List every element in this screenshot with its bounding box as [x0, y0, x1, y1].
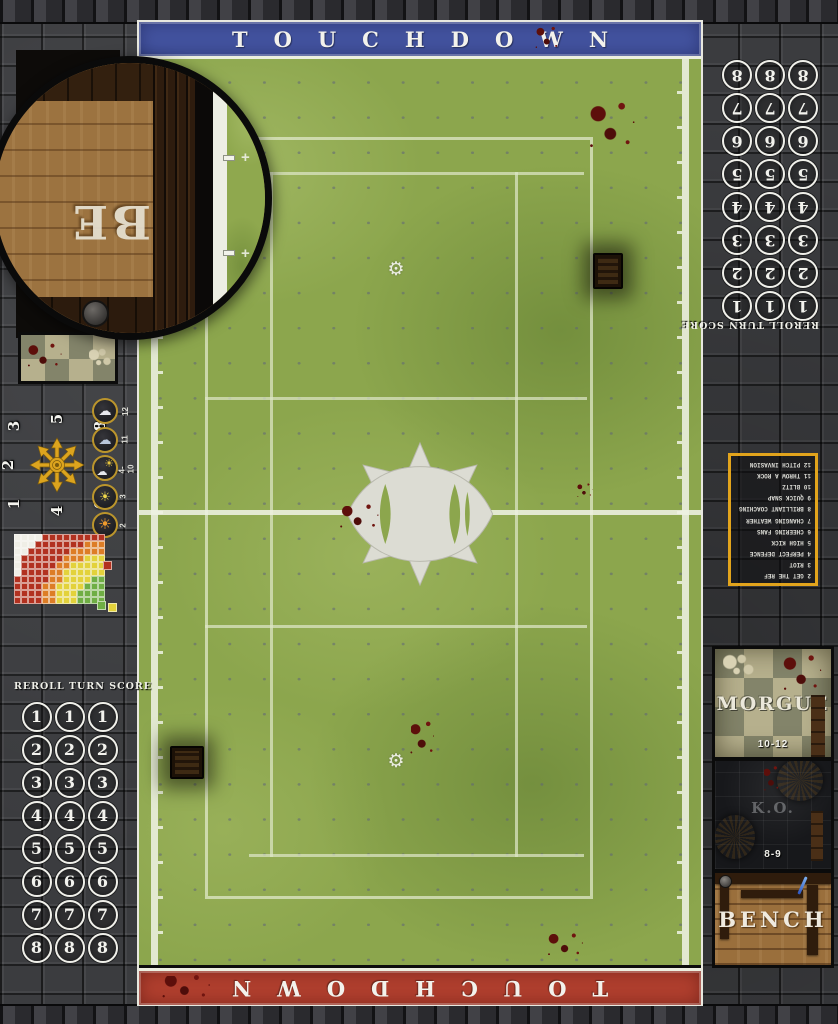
kickoff-table-row: 12 PITCH INVASION [733, 461, 813, 467]
range-cell [98, 548, 105, 555]
range-cell [14, 576, 21, 583]
blood-bowl-pitch-mat: TOUCHDOWN [0, 0, 838, 1024]
range-cell [70, 541, 77, 548]
range-legend-yellow [108, 603, 117, 612]
range-cell [98, 583, 105, 590]
range-cell [84, 576, 91, 583]
range-cell [56, 548, 63, 555]
range-cell [70, 534, 77, 541]
range-cell [84, 555, 91, 562]
range-cell [21, 576, 28, 583]
track-number-circle: 8 [788, 60, 818, 90]
weather-row: ☀☁4-10 [92, 455, 132, 481]
range-cell [70, 562, 77, 569]
rain-cloud-icon: ☁ [92, 427, 118, 453]
kickoff-table-row: 2 GET THE REF [733, 572, 813, 578]
range-cell [63, 541, 70, 548]
track-number-circle: 6 [22, 867, 52, 897]
weather-row: ☁11 [92, 427, 132, 453]
range-cell [14, 534, 21, 541]
track-number-circle: 6 [722, 126, 752, 156]
range-cell [42, 555, 49, 562]
track-number-circle: 4 [88, 801, 118, 831]
grid-cross-mark: + [241, 149, 250, 166]
range-cell [56, 583, 63, 590]
range-cell [28, 583, 35, 590]
track-number-circle: 8 [22, 933, 52, 963]
range-cell [77, 555, 84, 562]
range-cell [28, 555, 35, 562]
range-cell [84, 597, 91, 604]
range-cell [98, 576, 105, 583]
range-cell [91, 583, 98, 590]
range-cell [49, 555, 56, 562]
track-number-circle: 5 [722, 159, 752, 189]
range-cell [63, 555, 70, 562]
range-cell [63, 590, 70, 597]
kickoff-table-row: 9 QUICK SNAP [733, 494, 813, 500]
range-cell [49, 583, 56, 590]
range-cell [28, 590, 35, 597]
blood-splatter [576, 482, 594, 500]
sideline-zoomed [213, 63, 227, 333]
range-cell [70, 555, 77, 562]
track-number-circle: 6 [55, 867, 85, 897]
kickoff-table: 2 GET THE REF3 RIOT4 PERFECT DEFENCE5 HI… [728, 453, 818, 586]
metal-knob [719, 875, 732, 888]
range-cell [63, 548, 70, 555]
range-cell [84, 569, 91, 576]
range-cell [63, 569, 70, 576]
scatter-number: 2 [0, 460, 17, 470]
range-cell [49, 548, 56, 555]
range-cell [21, 548, 28, 555]
track-number-circle: 8 [88, 933, 118, 963]
track-number-circle: 8 [755, 60, 785, 90]
range-cell [56, 576, 63, 583]
metal-knob-zoomed [82, 300, 109, 327]
track-number-circle: 2 [22, 735, 52, 765]
track-number-circle: 5 [788, 159, 818, 189]
kickoff-table-row: 6 CHEERING FANS [733, 528, 813, 534]
range-cell [91, 541, 98, 548]
range-cell [14, 569, 21, 576]
range-cell [63, 583, 70, 590]
range-cell [49, 576, 56, 583]
range-cell [77, 576, 84, 583]
weather-roll: 4-10 [118, 463, 136, 474]
range-cell [56, 597, 63, 604]
touchdown-banner-top: TOUCHDOWN [139, 22, 701, 59]
range-cell [84, 534, 91, 541]
track-number-circle: 3 [88, 768, 118, 798]
bench-furniture [715, 873, 831, 884]
bench-frame-bottom [0, 297, 160, 333]
range-cell [42, 583, 49, 590]
track-number-circle: 3 [722, 225, 752, 255]
range-cell [70, 576, 77, 583]
track-number-circle: 3 [55, 768, 85, 798]
range-cell [35, 541, 42, 548]
range-cell [77, 534, 84, 541]
track-number-circle: 3 [788, 225, 818, 255]
bench-furniture [741, 890, 803, 898]
track-number-circle: 7 [22, 900, 52, 930]
range-cell [28, 576, 35, 583]
dark-plank-strip [153, 63, 195, 333]
left-morgue [18, 332, 118, 384]
bones-icon [723, 653, 757, 683]
track-number-circle: 7 [722, 93, 752, 123]
track-number-circle: 1 [88, 702, 118, 732]
track-number-circle: 3 [755, 225, 785, 255]
wooden-crate-top [593, 253, 623, 289]
sideline-tick [223, 155, 235, 161]
weather-roll: 12 [121, 407, 130, 416]
grid-cross-mark: + [241, 245, 250, 262]
kickoff-table-row: 3 RIOT [733, 561, 813, 567]
scatter-number: 3 [5, 421, 23, 431]
range-cell [21, 583, 28, 590]
blood-splatter [545, 931, 587, 961]
wooden-crate-bottom [170, 746, 204, 779]
range-cell [28, 534, 35, 541]
range-cell [28, 597, 35, 604]
range-cell [77, 597, 84, 604]
range-cell [14, 548, 21, 555]
range-cell [84, 590, 91, 597]
field-line-mid-upper [205, 397, 587, 400]
track-number-circle: 4 [22, 801, 52, 831]
range-cell [77, 569, 84, 576]
right-bench: BENCH [715, 873, 831, 965]
range-cell [42, 569, 49, 576]
track-number-circle: 5 [22, 834, 52, 864]
range-cell [84, 541, 91, 548]
track-number-circle: 4 [755, 192, 785, 222]
range-cell [42, 590, 49, 597]
range-cell [35, 534, 42, 541]
range-cell [35, 569, 42, 576]
range-cell [56, 555, 63, 562]
range-cell [91, 576, 98, 583]
turn-track-right: 888777666555444333222111 [720, 58, 819, 322]
range-cell [14, 562, 21, 569]
range-cell [14, 555, 21, 562]
track-number-circle: 4 [55, 801, 85, 831]
range-cell [98, 569, 105, 576]
scatter-number: 4 [48, 506, 66, 516]
track-number-circle: 2 [788, 258, 818, 288]
scatter-arrows-icon [27, 435, 87, 495]
range-ruler-chart [14, 534, 105, 604]
range-cell [14, 541, 21, 548]
right-knocked-out-box: K.O. 8-9 [715, 761, 831, 869]
range-cell [63, 562, 70, 569]
blood-splatter [781, 651, 825, 699]
track-number-circle: 8 [55, 933, 85, 963]
sun-icon: ☀ [92, 484, 118, 510]
bones-icon [89, 347, 113, 373]
range-cell [91, 548, 98, 555]
kickoff-spot-icon-bottom: ⚙ [385, 751, 407, 773]
blood-splatter [763, 763, 781, 797]
weather-row: ☀3 [92, 484, 132, 510]
range-cell [91, 569, 98, 576]
turn-track-header-left: REROLL TURN SCORE [14, 681, 118, 692]
track-number-circle: 6 [88, 867, 118, 897]
touchdown-banner-bottom: TOUCHDOWN [139, 968, 701, 1005]
track-number-circle: 2 [55, 735, 85, 765]
range-cell [21, 555, 28, 562]
kickoff-table-row: 5 HIGH KICK [733, 539, 813, 545]
range-cell [42, 541, 49, 548]
range-cell [42, 548, 49, 555]
wood-plank [811, 811, 823, 861]
blizzard-cloud-icon: ☁ [92, 398, 118, 424]
grass-zoomed [227, 63, 265, 333]
range-cell [98, 590, 105, 597]
range-cell [70, 597, 77, 604]
range-cell [49, 597, 56, 604]
range-cell [77, 562, 84, 569]
range-cell [28, 548, 35, 555]
range-cell [56, 569, 63, 576]
range-cell [49, 569, 56, 576]
track-number-circle: 5 [755, 159, 785, 189]
range-cell [70, 590, 77, 597]
range-cell [35, 583, 42, 590]
range-cell [63, 534, 70, 541]
blood-splatter [587, 97, 639, 159]
track-number-circle: 8 [722, 60, 752, 90]
range-cell [28, 562, 35, 569]
blood-splatter [409, 717, 437, 763]
range-cell [35, 562, 42, 569]
range-cell [35, 576, 42, 583]
kickoff-spot-icon-top: ⚙ [385, 259, 407, 281]
track-number-circle: 1 [22, 702, 52, 732]
track-number-circle: 7 [755, 93, 785, 123]
range-cell [42, 534, 49, 541]
bench-label: BENCH [715, 907, 831, 932]
field-line-inner-top [249, 172, 584, 175]
range-cell [56, 541, 63, 548]
blood-splatter [25, 341, 65, 373]
weather-roll: 3 [119, 494, 128, 498]
range-cell [49, 562, 56, 569]
range-cell [21, 534, 28, 541]
track-number-circle: 1 [55, 702, 85, 732]
range-cell [14, 583, 21, 590]
track-number-circle: 2 [722, 258, 752, 288]
range-cell [77, 541, 84, 548]
dugout-gap [195, 63, 213, 333]
track-number-circle: 3 [22, 768, 52, 798]
blood-splatter [534, 24, 562, 54]
range-cell [77, 583, 84, 590]
range-cell [21, 562, 28, 569]
range-cell [70, 583, 77, 590]
kickoff-table-row: 8 BRILLIANT COACHING [733, 505, 813, 511]
range-cell [56, 562, 63, 569]
range-cell [49, 534, 56, 541]
kickoff-table-row: 11 THROW A ROCK [733, 472, 813, 478]
scatter-number: 1 [5, 499, 23, 509]
kickoff-table-row: 4 PERFECT DEFENCE [733, 550, 813, 556]
sun-and-cloud-icon: ☀☁ [92, 455, 118, 481]
track-number-circle: 1 [788, 291, 818, 321]
left-bench-label-partial: BE [61, 159, 151, 249]
weather-table: ☁12☁11☀☁4-10☀3☀2 [92, 398, 132, 538]
right-dugout: MORGUE 10-12 K.O. 8-9 BENCH [712, 646, 834, 968]
range-cell [56, 534, 63, 541]
range-cell [91, 562, 98, 569]
track-number-circle: 7 [55, 900, 85, 930]
range-cell [84, 548, 91, 555]
track-number-circle: 4 [788, 192, 818, 222]
range-cell [35, 590, 42, 597]
weather-roll: 11 [121, 435, 130, 443]
field-line-inner-bottom [249, 854, 584, 857]
blood-splatter [159, 973, 215, 1003]
track-number-circle: 5 [55, 834, 85, 864]
range-cell [84, 583, 91, 590]
blood-splatter [337, 502, 383, 534]
range-cell [42, 562, 49, 569]
range-cell [91, 590, 98, 597]
weather-roll: 2 [119, 523, 128, 527]
range-cell [35, 555, 42, 562]
range-cell [42, 576, 49, 583]
touchdown-banner-top-label: TOUCHDOWN [206, 27, 634, 52]
range-cell [63, 576, 70, 583]
range-cell [91, 534, 98, 541]
range-cell [28, 541, 35, 548]
range-cell [14, 590, 21, 597]
kickoff-table-row: 7 CHANGING WEATHER [733, 517, 813, 523]
hay-bale [777, 761, 823, 801]
range-legend-red [103, 561, 112, 570]
track-number-circle: 7 [788, 93, 818, 123]
range-cell [35, 548, 42, 555]
scatter-number: 5 [48, 414, 66, 424]
range-cell [70, 569, 77, 576]
range-cell [98, 541, 105, 548]
track-number-circle: 1 [755, 291, 785, 321]
track-number-circle: 2 [755, 258, 785, 288]
range-cell [49, 590, 56, 597]
field-line-mid-lower [205, 625, 587, 628]
range-cell [21, 541, 28, 548]
track-number-circle: 1 [722, 291, 752, 321]
range-cell [35, 597, 42, 604]
range-cell [21, 569, 28, 576]
range-cell [21, 597, 28, 604]
track-number-circle: 6 [788, 126, 818, 156]
sideline-tick [223, 250, 235, 256]
range-cell [98, 534, 105, 541]
range-cell [63, 597, 70, 604]
range-cell [28, 569, 35, 576]
range-cell [21, 590, 28, 597]
right-morgue: MORGUE 10-12 [715, 649, 831, 757]
touchdown-banner-bottom-label: TOUCHDOWN [206, 976, 634, 1001]
magnifier-inset: BE + + [0, 56, 272, 340]
range-cell [70, 548, 77, 555]
range-legend-green [97, 601, 106, 610]
turn-track-left: 111222333444555666777888 [20, 700, 119, 964]
track-number-circle: 4 [722, 192, 752, 222]
track-number-circle: 6 [755, 126, 785, 156]
range-cell [49, 541, 56, 548]
turn-track-header-right: REROLL TURN SCORE [713, 319, 819, 330]
range-cell [84, 562, 91, 569]
stone-border-bottom [0, 1004, 838, 1024]
range-cell [91, 555, 98, 562]
wood-plank [811, 695, 825, 757]
track-number-circle: 2 [88, 735, 118, 765]
weather-row: ☁12 [92, 398, 132, 424]
range-cell [77, 590, 84, 597]
range-cell [42, 597, 49, 604]
track-number-circle: 5 [88, 834, 118, 864]
range-cell [56, 590, 63, 597]
range-cell [77, 548, 84, 555]
track-number-circle: 7 [88, 900, 118, 930]
kickoff-table-row: 10 BLITZ [733, 483, 813, 489]
range-cell [14, 597, 21, 604]
